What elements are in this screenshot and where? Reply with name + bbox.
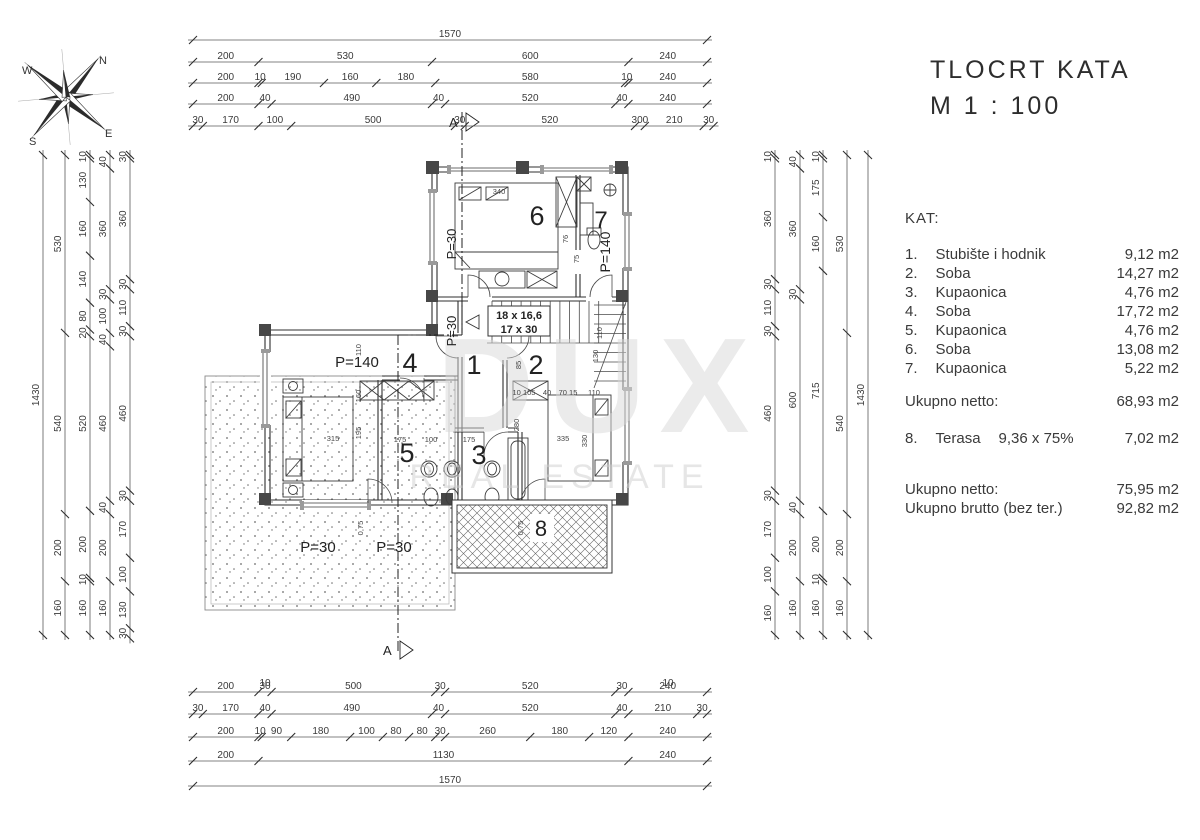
- svg-text:520: 520: [522, 93, 539, 104]
- svg-text:200: 200: [835, 539, 846, 556]
- svg-text:200: 200: [53, 539, 64, 556]
- svg-text:160: 160: [763, 604, 774, 621]
- compass-w: W: [22, 65, 33, 77]
- dim-chain-left-1: 1430: [31, 150, 47, 640]
- legend-room-row: 7.Kupaonica5,22 m2: [905, 359, 1179, 378]
- section-label-bottom: A: [383, 643, 392, 658]
- compass-s: S: [29, 136, 36, 148]
- svg-text:10: 10: [78, 151, 89, 163]
- svg-text:80: 80: [417, 726, 429, 737]
- svg-text:10: 10: [811, 574, 822, 586]
- svg-text:160: 160: [342, 72, 359, 83]
- room-number-label: 8: [535, 516, 547, 541]
- svg-text:40: 40: [259, 703, 271, 714]
- room-legend: KAT: 1.Stubište i hodnik9,12 m22.Soba14,…: [905, 210, 1179, 518]
- svg-text:30: 30: [616, 681, 628, 692]
- watermark-sub: REAL ESTATE: [409, 458, 710, 496]
- svg-text:175: 175: [811, 179, 822, 196]
- svg-text:520: 520: [522, 703, 539, 714]
- svg-text:40: 40: [259, 93, 271, 104]
- svg-text:200: 200: [217, 93, 234, 104]
- interior-dim-label: 315: [327, 434, 340, 443]
- dim-chain-top-4: 200404904052040240: [188, 93, 712, 108]
- parapet-label: P=30: [444, 316, 459, 347]
- stair-dimension-label: 18 x 16,6: [496, 310, 542, 322]
- svg-text:30: 30: [118, 627, 129, 639]
- floor-plan-page: W N S E: [0, 0, 1200, 840]
- svg-text:80: 80: [390, 726, 402, 737]
- interior-dim-label: 75: [572, 255, 581, 263]
- svg-text:200: 200: [217, 726, 234, 737]
- svg-text:460: 460: [118, 405, 129, 422]
- dim-chain-top-3: 2001019016018058010240: [188, 72, 712, 87]
- svg-text:30: 30: [435, 681, 447, 692]
- svg-text:40: 40: [98, 501, 109, 513]
- legend-subtotal: Ukupno netto: 68,93 m2: [905, 392, 1179, 411]
- window-west-wing: [260, 349, 271, 428]
- svg-text:600: 600: [788, 391, 799, 408]
- room-number-label: 1: [466, 350, 481, 380]
- dim-chain-right-4: 530540200160: [835, 150, 851, 640]
- svg-text:100: 100: [98, 307, 109, 324]
- window-south: [300, 500, 371, 511]
- svg-text:1430: 1430: [31, 383, 42, 406]
- svg-text:10: 10: [811, 151, 822, 163]
- legend-total-netto: Ukupno netto: 75,95 m2: [905, 480, 1179, 499]
- svg-text:190: 190: [285, 72, 302, 83]
- svg-text:30: 30: [703, 115, 715, 126]
- legend-room-list: 1.Stubište i hodnik9,12 m22.Soba14,27 m2…: [905, 245, 1179, 378]
- svg-text:540: 540: [53, 415, 64, 432]
- interior-dim-label: 70 15: [559, 388, 578, 397]
- svg-text:530: 530: [53, 235, 64, 252]
- interior-dim-label: 0,75: [516, 521, 525, 536]
- svg-text:20: 20: [78, 327, 89, 339]
- svg-text:100: 100: [763, 566, 774, 583]
- svg-text:120: 120: [600, 726, 617, 737]
- window-north-2: [540, 164, 613, 175]
- window-north-1: [447, 164, 521, 175]
- interior-dim-label: 110: [595, 327, 604, 339]
- svg-text:100: 100: [118, 566, 129, 583]
- svg-text:160: 160: [811, 235, 822, 252]
- svg-text:160: 160: [835, 599, 846, 616]
- dresser-room6: [479, 271, 525, 288]
- interior-dim-label: 85: [514, 361, 523, 369]
- window-west-upper: [427, 189, 438, 265]
- svg-text:30: 30: [98, 288, 109, 300]
- svg-text:40: 40: [433, 703, 445, 714]
- svg-text:30: 30: [118, 278, 129, 290]
- svg-text:200: 200: [217, 681, 234, 692]
- svg-text:10: 10: [255, 72, 267, 83]
- svg-text:30: 30: [192, 115, 204, 126]
- interior-dim-label: 76: [561, 235, 570, 243]
- legend-room-row: 5.Kupaonica4,76 m2: [905, 321, 1179, 340]
- dim-chain-bottom-3: 2001090180100808030260180120240: [188, 726, 712, 741]
- svg-text:490: 490: [343, 703, 360, 714]
- svg-text:160: 160: [53, 599, 64, 616]
- svg-text:360: 360: [788, 220, 799, 237]
- svg-text:180: 180: [312, 726, 329, 737]
- svg-text:30: 30: [118, 151, 129, 163]
- interior-dim-label: 110: [588, 388, 600, 397]
- svg-text:30: 30: [118, 490, 129, 502]
- svg-text:200: 200: [78, 536, 89, 553]
- svg-text:170: 170: [763, 520, 774, 537]
- legend-terrace: 8. Terasa 9,36 x 75% 7,02 m2: [905, 429, 1179, 448]
- svg-text:130: 130: [118, 601, 129, 618]
- stair-dimension-label: 17 x 30: [501, 324, 538, 336]
- svg-text:600: 600: [522, 51, 539, 62]
- interior-dim-label: 100: [425, 435, 438, 444]
- parapet-label: P=30: [300, 539, 335, 556]
- svg-text:530: 530: [835, 235, 846, 252]
- interior-dim-label: 160: [354, 390, 363, 403]
- title-block: TLOCRT KATA M 1 : 100: [930, 52, 1131, 124]
- svg-text:540: 540: [835, 415, 846, 432]
- legend-room-row: 2.Soba14,27 m2: [905, 264, 1179, 283]
- svg-text:500: 500: [345, 681, 362, 692]
- interior-dim-label: 130: [591, 350, 600, 363]
- svg-text:580: 580: [522, 72, 539, 83]
- svg-text:240: 240: [659, 750, 676, 761]
- svg-text:210: 210: [654, 703, 671, 714]
- legend-room-row: 6.Soba13,08 m2: [905, 340, 1179, 359]
- interior-dim-label: 340: [493, 187, 506, 196]
- window-east-bath7: [622, 212, 633, 271]
- legend-total-brutto: Ukupno brutto (bez ter.) 92,82 m2: [905, 499, 1179, 518]
- dim-chain-bottom-2: 3017040490405204021030: [188, 703, 712, 718]
- dim-chain-right-3: 1017516071520010160: [811, 150, 827, 640]
- closet-room6: [527, 271, 557, 288]
- svg-text:30: 30: [763, 490, 774, 502]
- svg-text:40: 40: [788, 156, 799, 168]
- sink-room7: [604, 184, 616, 196]
- dim-chain-left-4: 40360301004046040200160: [98, 150, 114, 640]
- svg-text:715: 715: [811, 382, 822, 399]
- interior-dim-label: 10 105: [513, 388, 536, 397]
- svg-text:490: 490: [343, 93, 360, 104]
- drawing-title: TLOCRT KATA: [930, 52, 1131, 88]
- svg-text:240: 240: [659, 726, 676, 737]
- svg-text:30: 30: [192, 703, 204, 714]
- svg-text:240: 240: [659, 51, 676, 62]
- svg-text:500: 500: [365, 115, 382, 126]
- svg-text:360: 360: [763, 210, 774, 227]
- svg-text:260: 260: [479, 726, 496, 737]
- svg-text:1570: 1570: [439, 29, 462, 40]
- svg-text:200: 200: [98, 539, 109, 556]
- interior-dim-label: 40: [543, 388, 551, 397]
- dim-chain-bottom-5: 1570: [188, 775, 712, 790]
- svg-text:200: 200: [217, 72, 234, 83]
- svg-text:300: 300: [632, 115, 649, 126]
- dim-chain-left-2: 530540200160: [53, 150, 69, 640]
- svg-text:200: 200: [217, 51, 234, 62]
- svg-text:110: 110: [118, 299, 129, 315]
- dim-chain-left-5: 3036030110304603017010013030: [118, 150, 134, 643]
- room-number-label: 6: [529, 201, 544, 231]
- svg-text:1570: 1570: [439, 775, 462, 786]
- drawing-scale: M 1 : 100: [930, 88, 1131, 124]
- svg-text:170: 170: [222, 703, 239, 714]
- dim-chain-top-5: 301701005003052030021030: [188, 115, 719, 130]
- svg-text:160: 160: [788, 599, 799, 616]
- svg-text:110: 110: [763, 299, 774, 315]
- compass-n: N: [99, 55, 107, 67]
- watermark: DUX REAL ESTATE: [409, 310, 763, 496]
- svg-text:200: 200: [811, 536, 822, 553]
- dim-chain-bottom-4: 2001130240: [188, 750, 712, 765]
- dim-chain-right-1: 10360301103046030170100160: [763, 150, 779, 640]
- svg-text:160: 160: [811, 599, 822, 616]
- svg-text:240: 240: [659, 93, 676, 104]
- room-number-label: 3: [471, 440, 486, 470]
- interior-dim-label: 195: [354, 427, 363, 440]
- dim-chain-left-3: 10130160140802052020010160: [78, 150, 94, 640]
- parapet-label: P=30: [376, 539, 411, 556]
- parapet-label: P=30: [444, 229, 459, 260]
- svg-text:200: 200: [788, 539, 799, 556]
- compass-e: E: [105, 128, 112, 140]
- dim-chain-top-2: 200530600240: [188, 51, 712, 66]
- interior-dim-label: 280: [512, 419, 521, 432]
- svg-text:180: 180: [397, 72, 414, 83]
- svg-text:140: 140: [78, 270, 89, 287]
- svg-text:160: 160: [78, 220, 89, 237]
- shower-room7: [580, 203, 593, 235]
- dim-chain-top-1: 1570: [188, 29, 712, 44]
- svg-text:170: 170: [222, 115, 239, 126]
- svg-text:30: 30: [697, 703, 709, 714]
- interior-dim-label: 0,75: [356, 521, 365, 536]
- legend-room-row: 1.Stubište i hodnik9,12 m2: [905, 245, 1179, 264]
- room-number-label: 4: [402, 348, 417, 378]
- dim-chain-right-2: 403603060040200160: [788, 150, 804, 640]
- svg-text:90: 90: [271, 726, 283, 737]
- svg-text:10: 10: [255, 726, 267, 737]
- svg-text:520: 520: [78, 415, 89, 432]
- svg-text:1130: 1130: [433, 750, 455, 761]
- interior-dim-label: 330: [580, 435, 589, 448]
- svg-text:80: 80: [78, 310, 89, 322]
- interior-dim-label: 335: [557, 434, 570, 443]
- svg-text:100: 100: [358, 726, 375, 737]
- svg-text:1430: 1430: [856, 383, 867, 406]
- dim-micro-label: 10: [259, 678, 271, 689]
- svg-text:40: 40: [616, 703, 628, 714]
- svg-text:240: 240: [659, 72, 676, 83]
- parapet-label: P=140: [597, 231, 613, 272]
- svg-text:130: 130: [78, 171, 89, 188]
- wardrobe-room7: [556, 177, 591, 227]
- svg-text:40: 40: [433, 93, 445, 104]
- svg-text:40: 40: [98, 334, 109, 346]
- svg-text:40: 40: [616, 93, 628, 104]
- svg-text:30: 30: [454, 115, 466, 126]
- svg-text:160: 160: [98, 599, 109, 616]
- svg-text:520: 520: [542, 115, 559, 126]
- svg-text:180: 180: [551, 726, 568, 737]
- svg-text:40: 40: [98, 156, 109, 168]
- svg-text:30: 30: [763, 278, 774, 290]
- svg-text:10: 10: [763, 151, 774, 163]
- svg-text:10: 10: [621, 72, 633, 83]
- svg-text:40: 40: [788, 501, 799, 513]
- svg-text:30: 30: [118, 325, 129, 337]
- svg-text:160: 160: [78, 599, 89, 616]
- svg-text:10: 10: [78, 574, 89, 586]
- svg-text:100: 100: [267, 115, 284, 126]
- dim-micro-label: 10: [662, 678, 674, 689]
- svg-text:520: 520: [522, 681, 539, 692]
- terrace: [452, 500, 612, 573]
- interior-dim-label: 175: [394, 435, 407, 444]
- legend-room-row: 4.Soba17,72 m2: [905, 302, 1179, 321]
- svg-text:360: 360: [118, 210, 129, 227]
- svg-text:30: 30: [763, 325, 774, 337]
- svg-text:170: 170: [118, 520, 129, 537]
- svg-text:200: 200: [217, 750, 234, 761]
- svg-text:210: 210: [666, 115, 683, 126]
- room-number-label: 2: [528, 350, 543, 380]
- svg-text:30: 30: [435, 726, 447, 737]
- svg-text:360: 360: [98, 220, 109, 237]
- interior-dim-label: 175: [463, 435, 476, 444]
- room-number-label: 7: [594, 207, 607, 234]
- dim-chain-right-5: 1430: [856, 150, 872, 640]
- svg-text:460: 460: [98, 415, 109, 432]
- svg-text:530: 530: [337, 51, 354, 62]
- svg-text:460: 460: [763, 405, 774, 422]
- legend-heading: KAT:: [905, 210, 1179, 227]
- interior-dim-label: 110: [354, 344, 363, 356]
- svg-text:30: 30: [788, 288, 799, 300]
- legend-room-row: 3.Kupaonica4,76 m2: [905, 283, 1179, 302]
- compass-rose: W N S E: [0, 21, 142, 173]
